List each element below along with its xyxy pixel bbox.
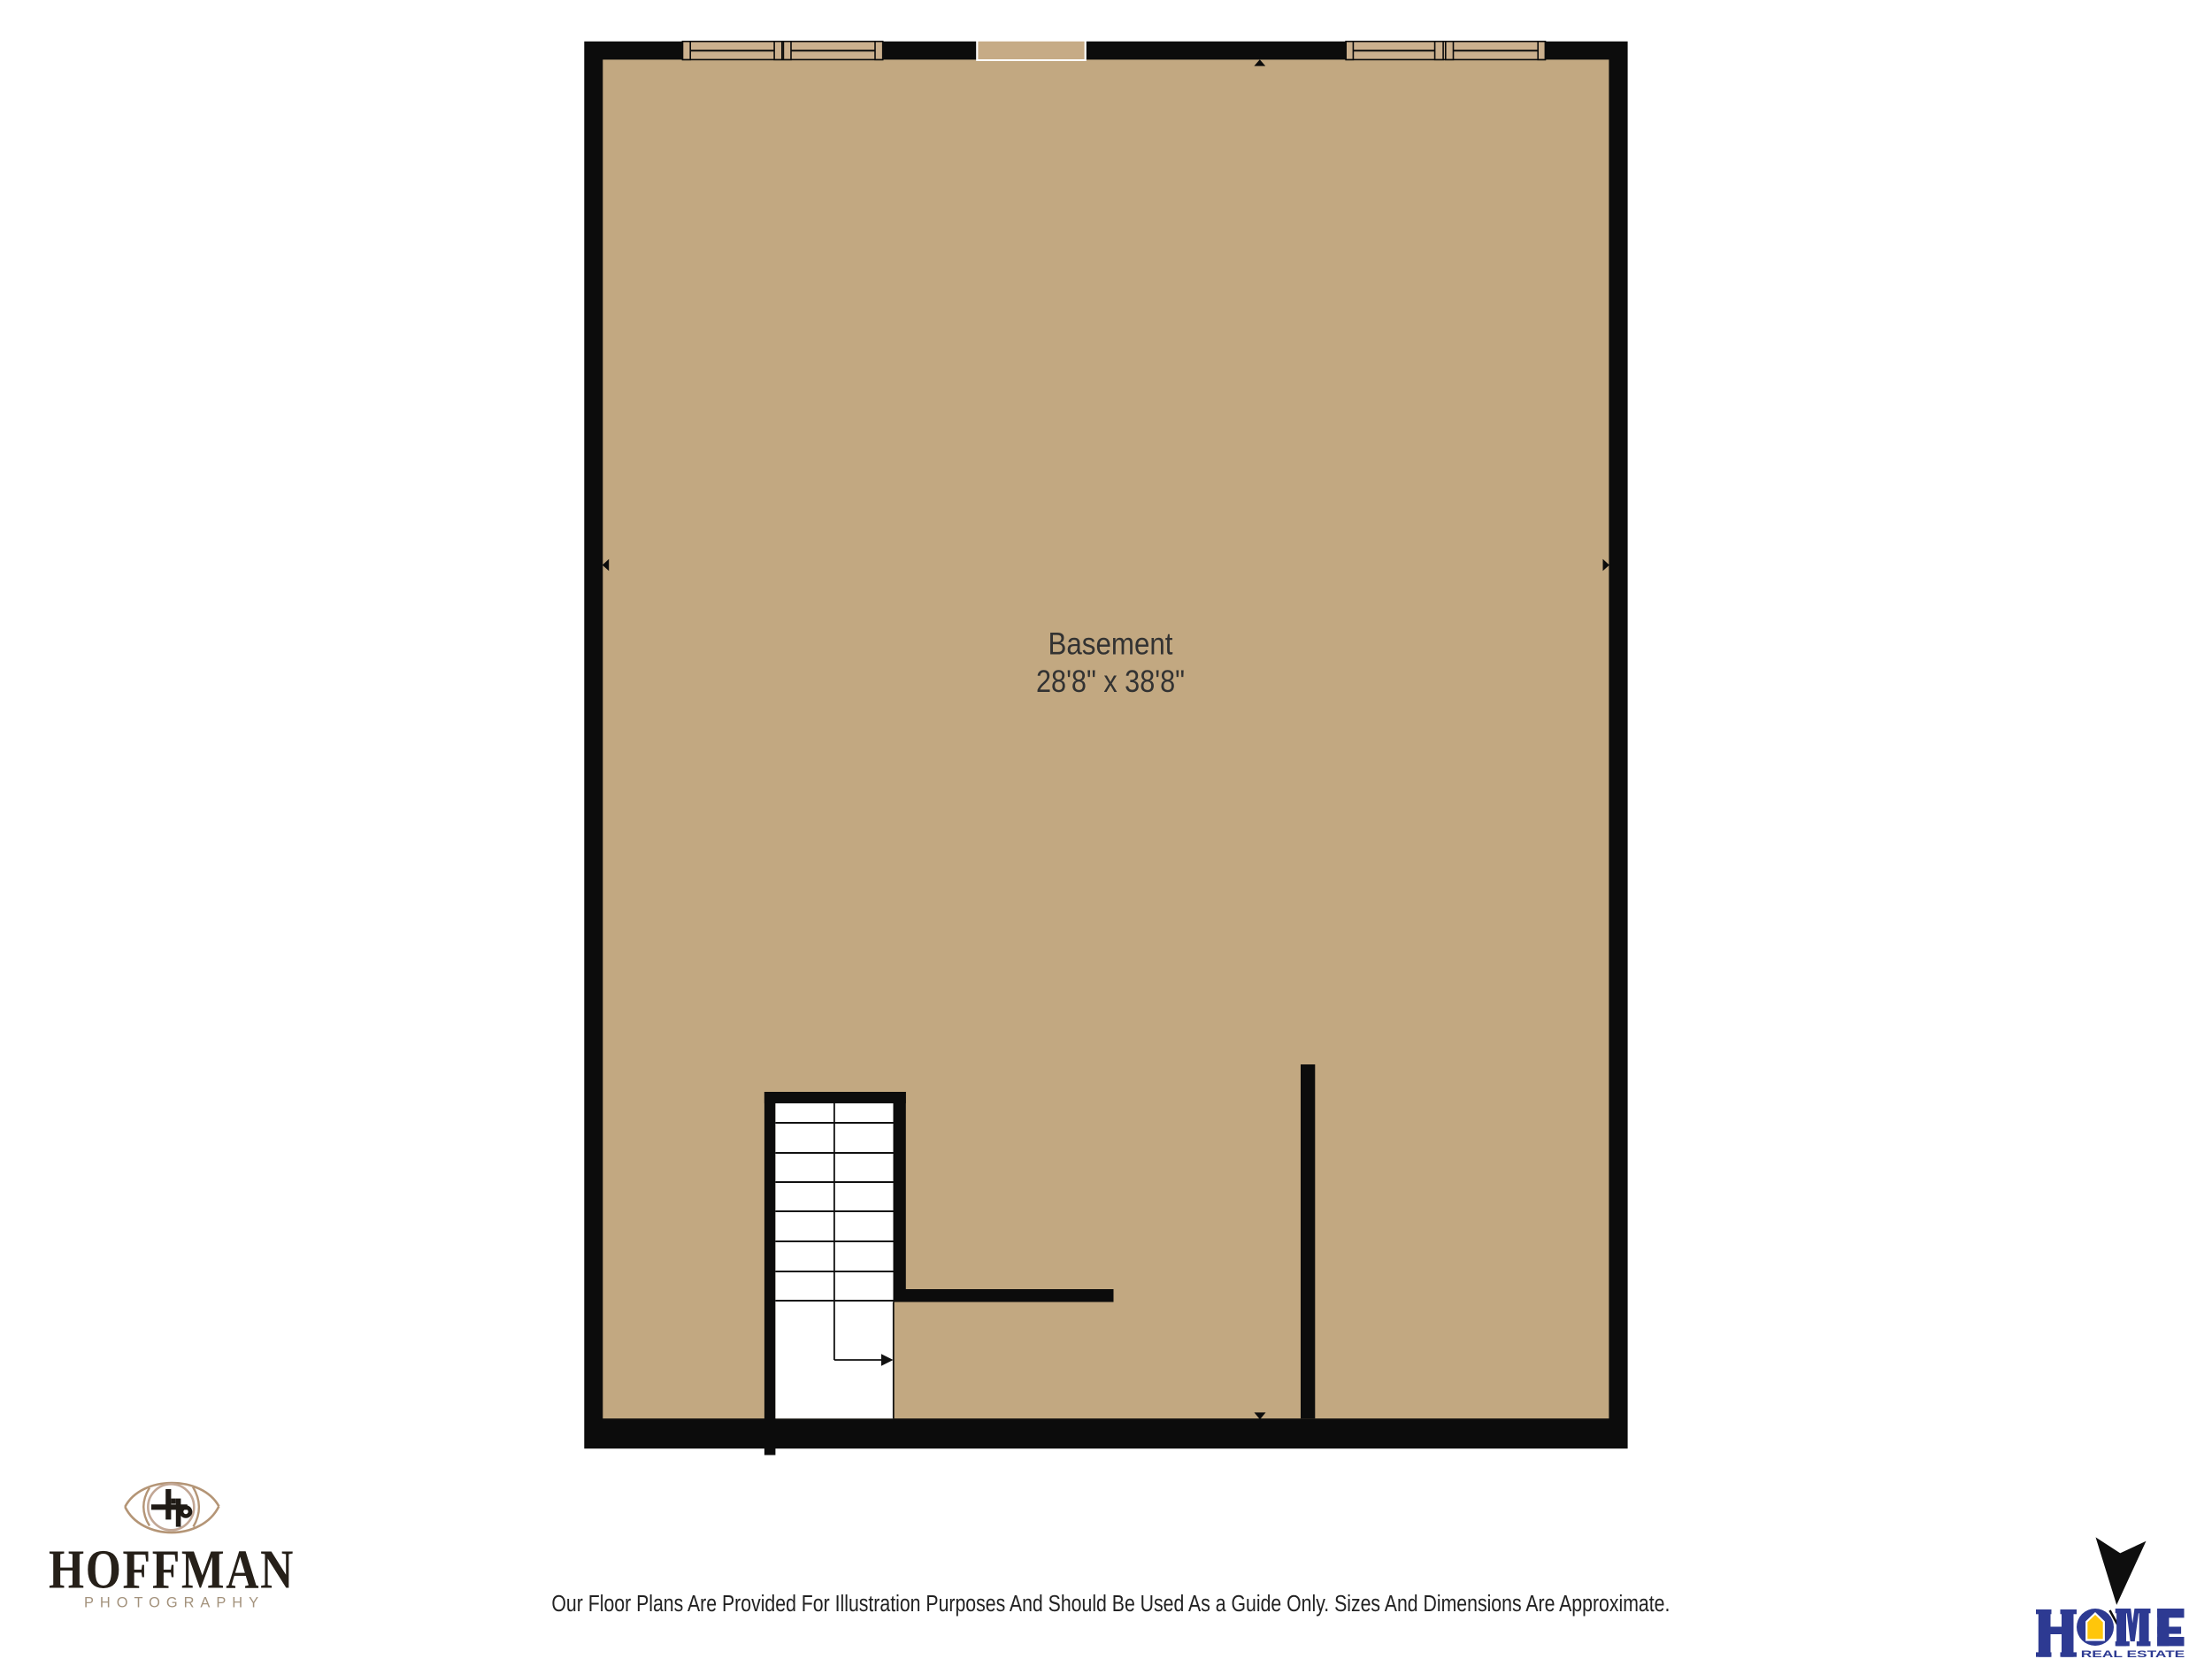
svg-text:Basement: Basement bbox=[1048, 626, 1173, 661]
svg-text:REAL ESTATE: REAL ESTATE bbox=[2081, 1649, 2185, 1659]
svg-text:PHOTOGRAPHY: PHOTOGRAPHY bbox=[84, 1594, 265, 1610]
svg-text:Our Floor Plans Are Provided F: Our Floor Plans Are Provided For Illustr… bbox=[551, 1592, 1670, 1617]
svg-text:28'8" x 38'8": 28'8" x 38'8" bbox=[1036, 664, 1185, 699]
svg-text:HOFFMAN: HOFFMAN bbox=[49, 1540, 295, 1601]
